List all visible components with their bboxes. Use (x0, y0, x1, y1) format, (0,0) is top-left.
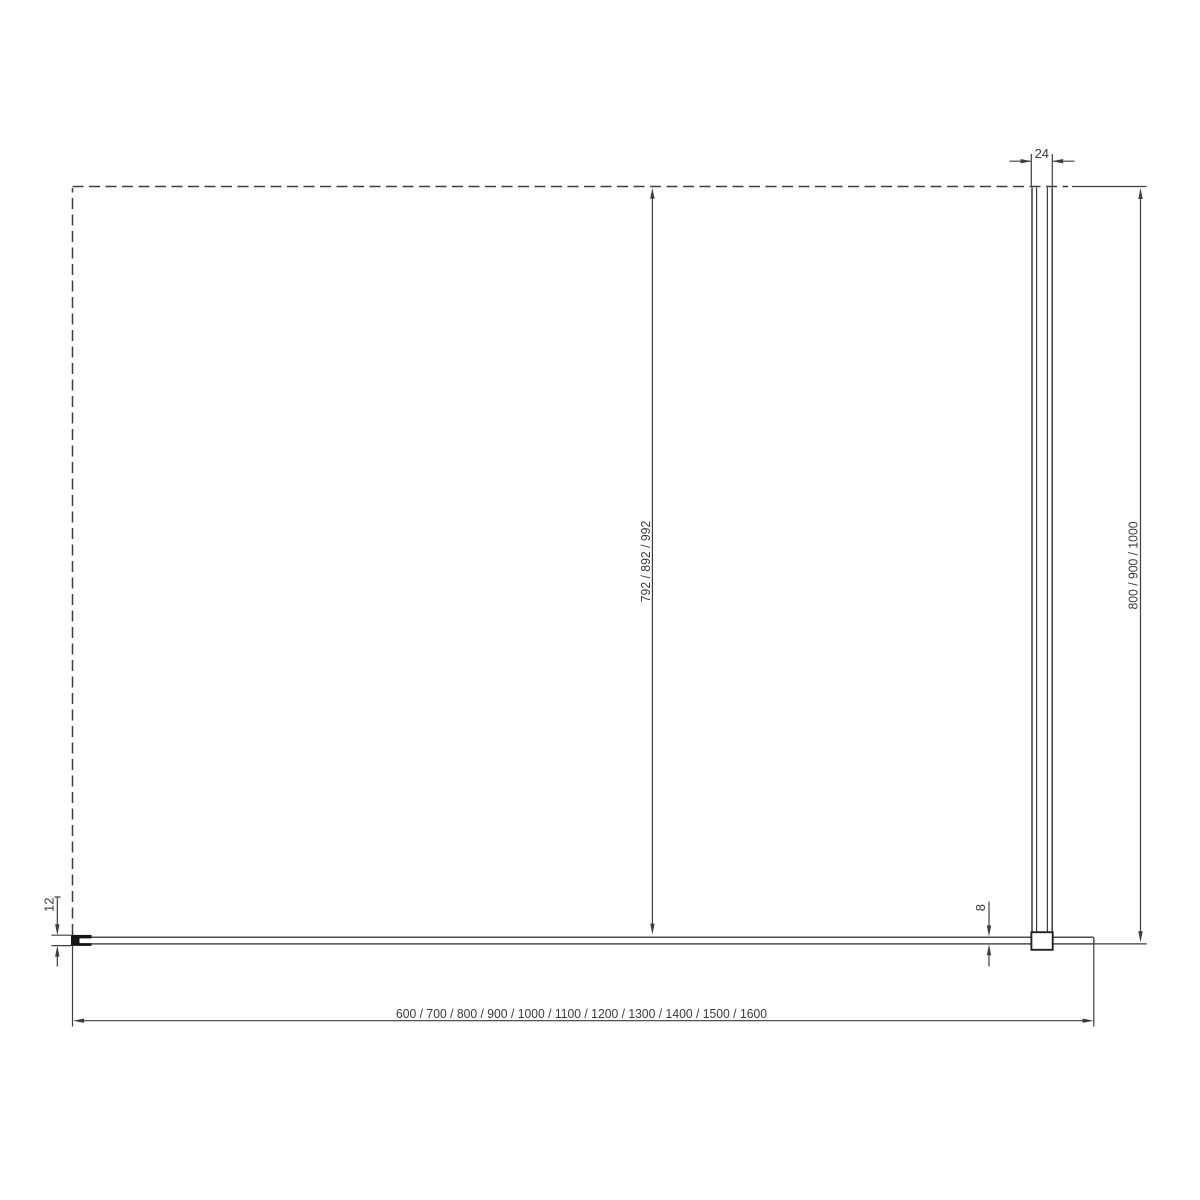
svg-text:800 / 900 / 1000: 800 / 900 / 1000 (1126, 522, 1141, 610)
svg-text:12: 12 (42, 898, 57, 912)
svg-text:600 / 700 / 800 / 900 / 1000 /: 600 / 700 / 800 / 900 / 1000 / 1100 / 12… (396, 1006, 767, 1021)
svg-text:8: 8 (973, 904, 988, 911)
svg-text:792 / 892 / 992: 792 / 892 / 992 (638, 521, 653, 603)
svg-text:24: 24 (1035, 146, 1049, 161)
